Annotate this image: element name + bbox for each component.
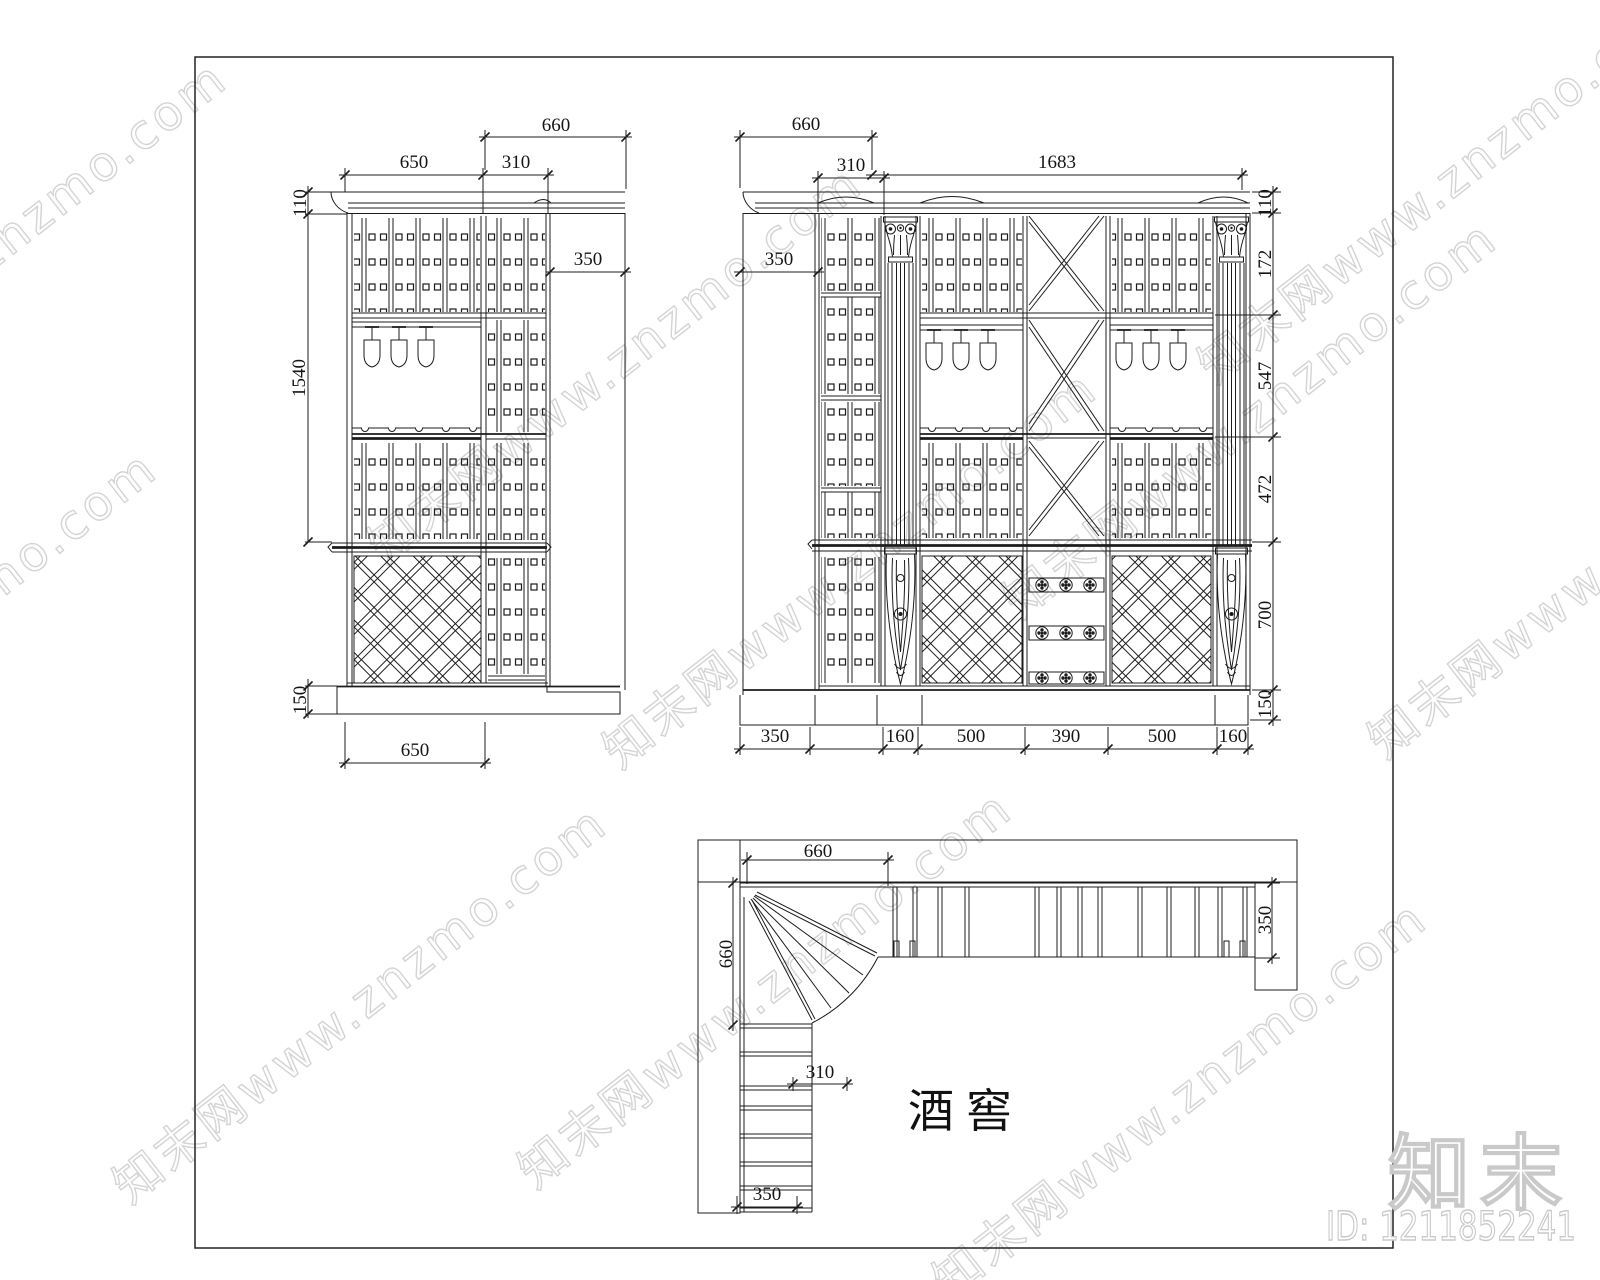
plan-view: 660 660 310 350 350	[698, 840, 1297, 1214]
wine-glass	[364, 327, 380, 367]
base-plinth	[337, 683, 620, 714]
dim-label: 350	[765, 249, 794, 270]
dim-bottom-depth: 350	[731, 1184, 803, 1214]
dim-label: 660	[542, 115, 571, 136]
counter	[328, 543, 551, 552]
dim-label: 350	[761, 726, 790, 747]
rack-panel	[488, 443, 545, 540]
dim-label: 390	[1052, 726, 1081, 747]
rosette-knob	[1060, 627, 1072, 639]
left-elevation-view: 660 650 310 110 1540 150	[289, 115, 632, 769]
wine-glass	[1116, 330, 1132, 370]
carved-corbel	[1216, 548, 1248, 684]
dim-widths: 650 310	[339, 152, 554, 214]
dim-label: 350	[574, 249, 603, 270]
dim-bottom-chain: 350 160 500 390 500 160	[734, 726, 1254, 755]
rack-panel	[354, 218, 480, 312]
dim-label: 500	[1148, 726, 1177, 747]
wine-glass	[926, 330, 942, 370]
corinthian-capital	[884, 217, 918, 262]
column-post	[1224, 941, 1229, 957]
wine-glass	[418, 327, 434, 367]
dim-return-depth: 350	[546, 249, 632, 277]
dim-label: 310	[837, 155, 866, 176]
dim-label: 547	[1255, 362, 1276, 391]
break-marks	[808, 540, 812, 549]
rack-panel	[354, 443, 480, 539]
rosette-knob	[1084, 579, 1096, 591]
wine-glass	[953, 330, 969, 370]
dim-label: 350	[1255, 906, 1276, 935]
dim-label: 650	[400, 152, 429, 173]
dim-bottom-width: 650	[339, 722, 491, 769]
middle-x-column	[1029, 216, 1104, 536]
cornice	[331, 192, 625, 214]
dim-label: 350	[753, 1184, 782, 1205]
dim-right-depth: 350	[1255, 877, 1280, 964]
scallop-edge	[352, 428, 481, 432]
rosette-knob	[1036, 627, 1048, 639]
rosette-knob	[1036, 672, 1048, 684]
dim-side-width: 310	[787, 1062, 853, 1091]
dim-label: 150	[290, 686, 311, 715]
rack-panel	[488, 320, 545, 432]
dim-vertical-chain: 110 1540 150	[289, 186, 347, 719]
dim-label: 310	[502, 152, 531, 173]
drawing-canvas: 知末网www.znzmo.com 知末网www.znzmo.com 知末网www…	[0, 0, 1600, 1280]
base-plinth	[740, 686, 1250, 725]
room-label: 酒窖	[908, 1084, 1024, 1138]
dim-label: 310	[806, 1062, 835, 1083]
dim-label: 1683	[1038, 152, 1076, 173]
walls	[698, 840, 1297, 1213]
watermark-tile: 知末网www.znzmo.com	[0, 49, 238, 469]
dim-label: 110	[1255, 189, 1276, 217]
dim-label: 160	[1219, 726, 1248, 747]
dim-label: 700	[1255, 601, 1276, 630]
section-right-500	[1110, 218, 1213, 683]
dim-label: 150	[1255, 690, 1276, 719]
dim-label: 160	[886, 726, 915, 747]
watermark-tile: 知末网www.znzmo.com	[1358, 349, 1600, 769]
column-left	[884, 217, 918, 684]
wine-glass	[1170, 330, 1186, 370]
rosette-knob	[1036, 579, 1048, 591]
lattice-cabinet	[354, 556, 481, 683]
rack-panel	[488, 218, 545, 312]
rosette-knob	[1084, 627, 1096, 639]
watermark-logo: 知末 ID: 1211852241	[1326, 1127, 1576, 1250]
dim-label: 660	[792, 114, 821, 135]
dim-label: 110	[290, 189, 311, 217]
dim-label: 172	[1255, 250, 1276, 279]
dim-label: 660	[804, 841, 833, 862]
rosette-knob	[1060, 579, 1072, 591]
rack-panel	[488, 558, 545, 674]
wine-glass	[1143, 330, 1159, 370]
dim-total-width: 1683	[866, 152, 1248, 190]
dim-label: 660	[716, 940, 737, 969]
wall-top	[698, 840, 1297, 882]
glass-rack	[352, 322, 481, 367]
id-text: ID: 1211852241	[1326, 1204, 1576, 1250]
dim-label: 500	[957, 726, 986, 747]
dim-label: 650	[401, 740, 430, 761]
dim-label: 472	[1255, 475, 1276, 504]
section-left-500	[920, 218, 1023, 683]
rosette-knob	[1060, 672, 1072, 684]
wine-glass	[980, 330, 996, 370]
rosette-knob	[1084, 672, 1096, 684]
wine-glass	[391, 327, 407, 367]
cad-sheet: 知末网www.znzmo.com 知末网www.znzmo.com 知末网www…	[0, 0, 1600, 1280]
corinthian-capital	[1215, 217, 1249, 262]
watermark-tile: 知末网www.znzmo.com	[0, 439, 168, 859]
dim-label: 1540	[289, 359, 310, 397]
left-310-rack	[821, 218, 881, 683]
